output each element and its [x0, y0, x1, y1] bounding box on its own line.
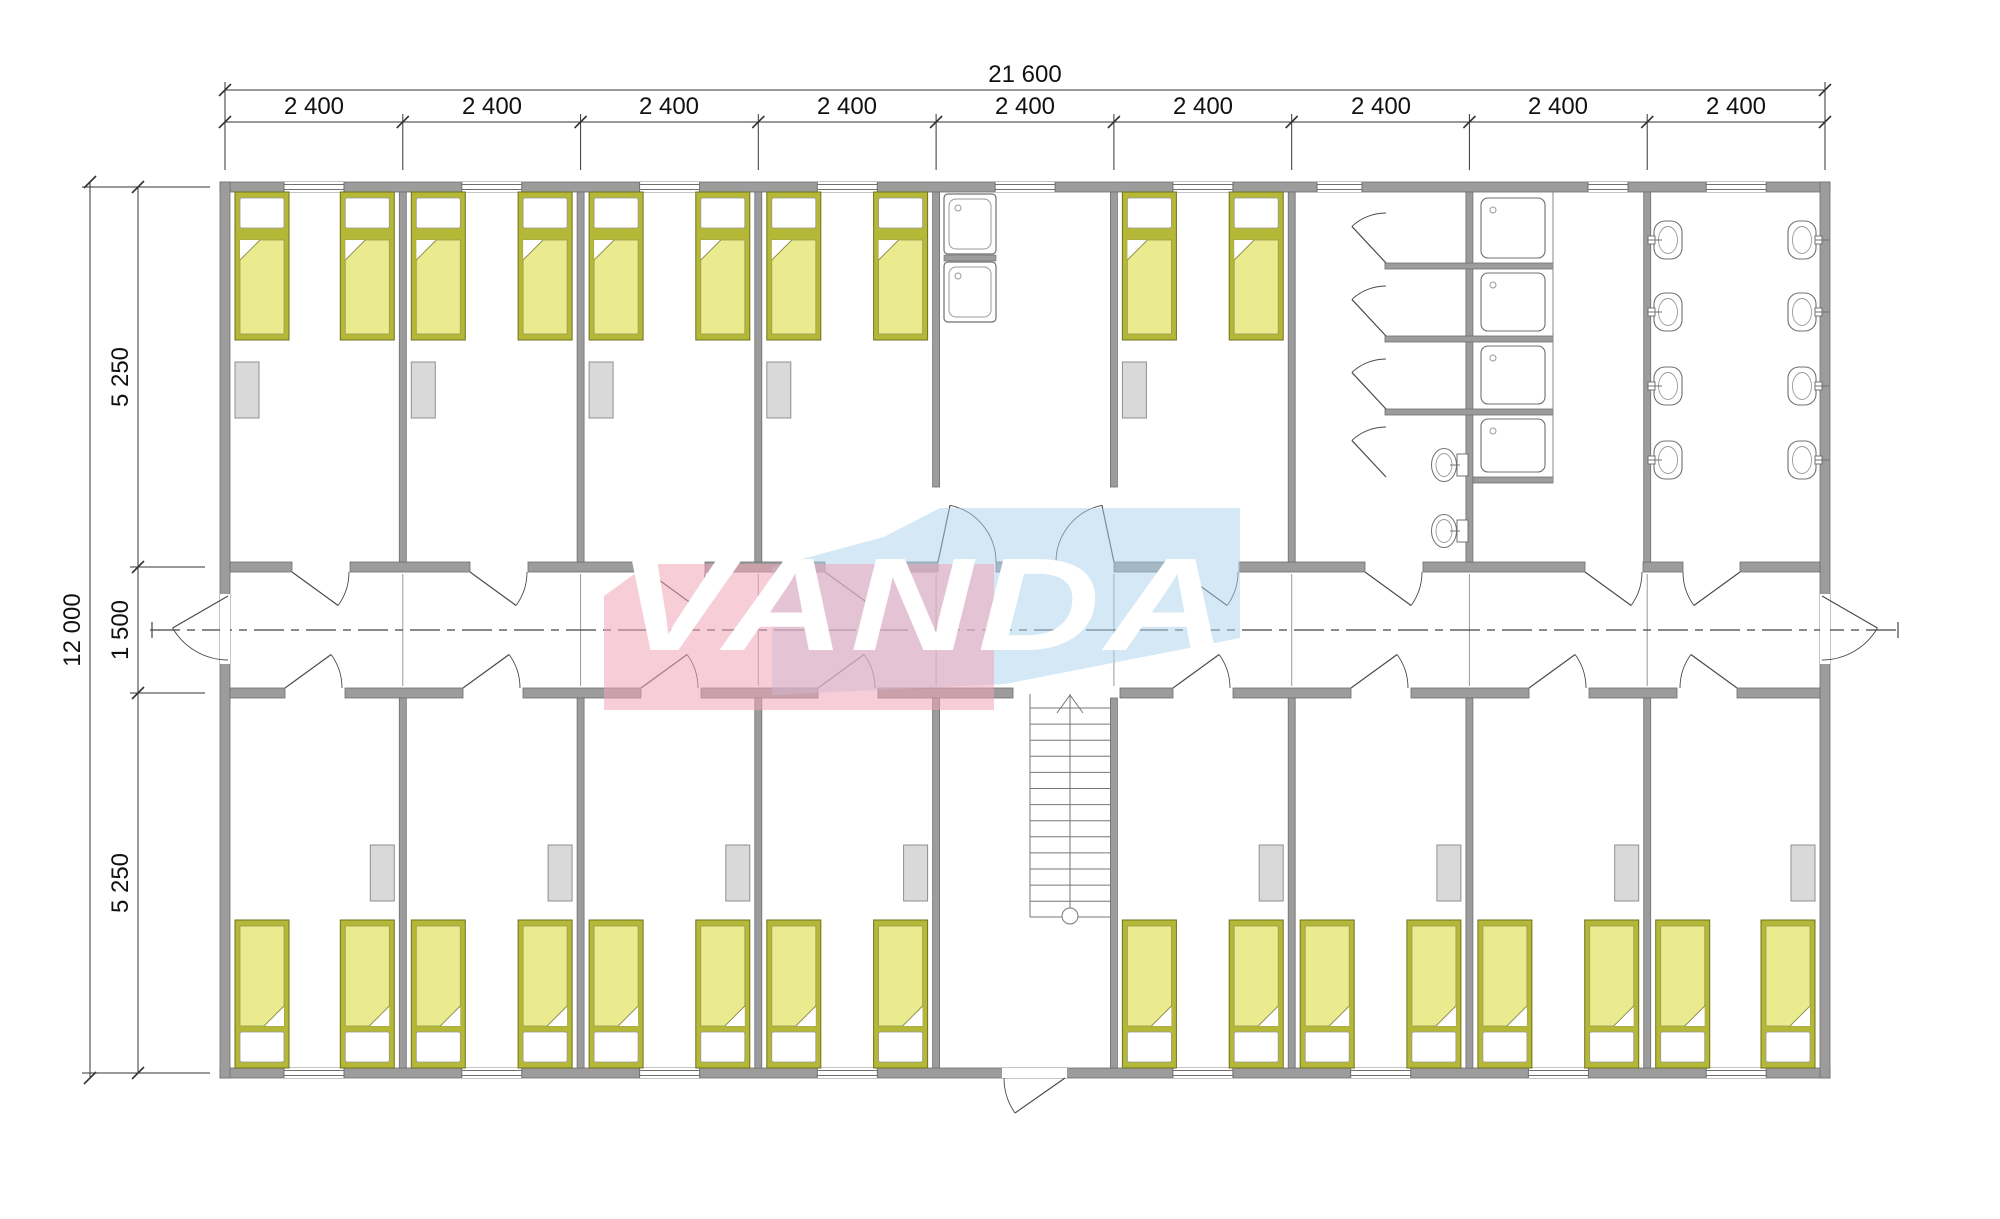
- watermark-text-layer: VANDA: [618, 531, 1233, 678]
- toilet: [1432, 515, 1469, 548]
- bed-pillow: [345, 1032, 389, 1062]
- shower-stall-door: [1352, 213, 1386, 263]
- dim-module-label: 2 400: [1528, 93, 1588, 120]
- bed-pillow: [1127, 1032, 1171, 1062]
- window-top: [817, 182, 877, 192]
- washbasin: [1648, 441, 1682, 479]
- wardrobe: [548, 845, 572, 901]
- bed: [1300, 920, 1354, 1068]
- room-door-top: [1365, 572, 1422, 606]
- bed: [1478, 920, 1532, 1068]
- bed: [1407, 920, 1461, 1068]
- bed-blanket: [1234, 240, 1278, 334]
- door-swing-arc: [1352, 286, 1386, 299]
- corridor-wall-top: [1643, 562, 1683, 572]
- door-leaf: [463, 654, 509, 688]
- door-leaf: [470, 572, 516, 606]
- window-top: [1588, 182, 1628, 192]
- stall-partition: [1385, 336, 1553, 342]
- bed-blanket: [240, 926, 284, 1026]
- door-swing-arc: [1575, 655, 1586, 689]
- bed-pillow: [240, 1032, 284, 1062]
- tray-outer: [1481, 346, 1545, 404]
- door-swing-arc: [1004, 1078, 1015, 1113]
- bed: [696, 192, 750, 340]
- bed-pillow: [772, 1032, 816, 1062]
- window-bottom: [1173, 1068, 1233, 1078]
- washbasin: [1648, 221, 1682, 259]
- stall-partition: [1385, 409, 1553, 415]
- bed: [235, 920, 289, 1068]
- bed-pillow: [240, 198, 284, 228]
- exit-opening-left: [220, 594, 230, 664]
- wardrobe: [1615, 845, 1639, 901]
- door-swing-arc: [1683, 572, 1694, 606]
- bed-pillow: [1412, 1032, 1456, 1062]
- partition-wall-top: [1644, 192, 1651, 562]
- room-door-top: [292, 572, 349, 606]
- door-leaf: [285, 654, 331, 688]
- door-swing-arc: [1680, 655, 1691, 689]
- washbasin: [1648, 293, 1682, 331]
- door-swing-arc: [1397, 655, 1408, 689]
- bed: [411, 920, 465, 1068]
- window-top: [1706, 182, 1766, 192]
- dim-module-label: 2 400: [639, 93, 699, 120]
- dim-module-label: 2 400: [995, 93, 1055, 120]
- staircase: [1030, 694, 1110, 924]
- dim-module-label: 2 400: [817, 93, 877, 120]
- bed-blanket: [701, 240, 745, 334]
- bed-pillow: [1127, 198, 1171, 228]
- room-door-bottom: [463, 654, 520, 688]
- shower-tray: [1481, 419, 1545, 472]
- bed: [1761, 920, 1815, 1068]
- door-swing-arc: [1352, 427, 1386, 440]
- partition-wall-top: [399, 192, 406, 562]
- partition-wall-bottom: [1644, 698, 1651, 1068]
- partition-wall-top: [577, 192, 584, 562]
- shower-stall-door: [1352, 427, 1386, 477]
- partition-wall-top: [1110, 192, 1117, 487]
- partition-wall-bottom: [933, 698, 940, 1068]
- dim-module-label: 2 400: [1351, 93, 1411, 120]
- corridor-wall-bottom: [1233, 688, 1351, 698]
- bed-pillow: [1661, 1032, 1705, 1062]
- window-bottom: [1351, 1068, 1411, 1078]
- partition-wall-bottom: [755, 698, 762, 1068]
- dim-module-label: 2 400: [1173, 93, 1233, 120]
- bed: [340, 192, 394, 340]
- entrance-door: [1004, 1078, 1065, 1113]
- room-door-bottom: [1529, 654, 1586, 688]
- bed: [874, 192, 928, 340]
- door-swing-arc: [516, 572, 527, 606]
- door-leaf: [1352, 372, 1386, 409]
- wardrobe: [370, 845, 394, 901]
- partition-wall-top: [1288, 192, 1295, 562]
- wardrobe: [1791, 845, 1815, 901]
- door-swing-arc: [1631, 572, 1642, 606]
- bed: [589, 192, 643, 340]
- partition-wall-top: [1466, 192, 1473, 562]
- bed-pillow: [1590, 1032, 1634, 1062]
- bed-pillow: [1483, 1032, 1527, 1062]
- bed: [518, 920, 572, 1068]
- bed: [1229, 192, 1283, 340]
- corridor-wall-bottom: [1120, 688, 1173, 698]
- exit-opening-right: [1820, 594, 1830, 664]
- bed-blanket: [594, 926, 638, 1026]
- door-leaf: [1352, 226, 1386, 263]
- partition-wall-top: [933, 192, 940, 487]
- bed-pillow: [594, 1032, 638, 1062]
- bed-blanket: [416, 240, 460, 334]
- window-bottom: [1528, 1068, 1588, 1078]
- bed: [696, 920, 750, 1068]
- shower-tray: [1481, 346, 1545, 404]
- room-door-bottom: [285, 654, 342, 688]
- bed-blanket: [1127, 240, 1171, 334]
- wardrobe: [904, 845, 928, 901]
- corridor-wall-bottom: [1411, 688, 1529, 698]
- shower-stall-door: [1352, 359, 1386, 409]
- sink-outer: [944, 262, 996, 322]
- bed: [767, 920, 821, 1068]
- shower-stall-door: [1352, 286, 1386, 336]
- corridor-wall-top: [1423, 562, 1585, 572]
- partition-wall-bottom: [1288, 698, 1295, 1068]
- corridor-wall-bottom: [1737, 688, 1820, 698]
- dim-module-label: 2 400: [1706, 93, 1766, 120]
- bed-pillow: [879, 198, 923, 228]
- kitchen-sink: [944, 262, 996, 322]
- door-swing-arc: [338, 572, 349, 606]
- corridor-wall-bottom: [230, 688, 285, 698]
- partition-wall-top: [755, 192, 762, 562]
- bed: [340, 920, 394, 1068]
- door-leaf: [1694, 572, 1740, 606]
- window-top: [462, 182, 522, 192]
- bed-pillow: [1766, 1032, 1810, 1062]
- window-bottom: [817, 1068, 877, 1078]
- bed-blanket: [523, 926, 567, 1026]
- bed-blanket: [1305, 926, 1349, 1026]
- bed-blanket: [1483, 926, 1527, 1026]
- shower-tray-end-wall: [1473, 477, 1553, 483]
- bed-pillow: [701, 198, 745, 228]
- corridor-wall-top: [350, 562, 470, 572]
- bed: [1122, 192, 1176, 340]
- bed: [1229, 920, 1283, 1068]
- door-swing-arc: [509, 655, 520, 689]
- corridor-wall-top: [230, 562, 292, 572]
- door-leaf: [1529, 654, 1575, 688]
- bed-blanket: [345, 240, 389, 334]
- watermark-logo-text: VANDA: [618, 531, 1233, 678]
- partition-wall-bottom: [1110, 698, 1117, 1068]
- bed: [235, 192, 289, 340]
- sink-divider: [944, 255, 996, 261]
- bed-pillow: [1234, 1032, 1278, 1062]
- dim-total-width-label: 21 600: [988, 61, 1061, 88]
- corridor-wall-top: [1740, 562, 1820, 572]
- bed-pillow: [523, 1032, 567, 1062]
- floor-plan-page: 21 600 2 400 2 400 2 400 2 400 2 400 2 4…: [0, 0, 2000, 1219]
- bed: [411, 192, 465, 340]
- bed-pillow: [1234, 198, 1278, 228]
- room-door-top: [1585, 572, 1642, 606]
- bed-blanket: [1127, 926, 1171, 1026]
- washbasin: [1648, 367, 1682, 405]
- bed-pillow: [523, 198, 567, 228]
- bed-blanket: [240, 240, 284, 334]
- toilet: [1432, 449, 1469, 482]
- wardrobe: [411, 362, 435, 418]
- window-top: [1317, 182, 1362, 192]
- door-swing-arc: [1352, 359, 1386, 372]
- wardrobe: [1437, 845, 1461, 901]
- dim-total-height-label: 12 000: [59, 593, 86, 666]
- door-leaf: [1352, 440, 1386, 477]
- window-bottom: [462, 1068, 522, 1078]
- bed: [767, 192, 821, 340]
- door-swing-arc: [1411, 572, 1422, 606]
- bed-pillow: [879, 1032, 923, 1062]
- door-leaf: [292, 572, 338, 606]
- bed-blanket: [1766, 926, 1810, 1026]
- window-top: [995, 182, 1055, 192]
- door-leaf: [1585, 572, 1631, 606]
- bed-pillow: [772, 198, 816, 228]
- kitchen-sink: [944, 194, 996, 254]
- door-leaf: [1352, 299, 1386, 336]
- bed: [1585, 920, 1639, 1068]
- bed: [874, 920, 928, 1068]
- bed-blanket: [879, 240, 923, 334]
- bed-pillow: [1305, 1032, 1349, 1062]
- dim-seg-bottom-label: 5 250: [107, 853, 134, 913]
- dim-module-label: 2 400: [284, 93, 344, 120]
- wardrobe: [726, 845, 750, 901]
- bed-blanket: [772, 926, 816, 1026]
- door-swing-arc: [331, 655, 342, 689]
- window-top: [1173, 182, 1233, 192]
- door-leaf: [1351, 654, 1397, 688]
- corridor-wall-top: [1239, 562, 1365, 572]
- bed-blanket: [1412, 926, 1456, 1026]
- window-top: [284, 182, 344, 192]
- dim-seg-corridor-label: 1 500: [107, 600, 134, 660]
- partition-wall-bottom: [577, 698, 584, 1068]
- floor-plan-canvas: 21 600 2 400 2 400 2 400 2 400 2 400 2 4…: [0, 0, 2000, 1219]
- window-bottom: [640, 1068, 700, 1078]
- room-door-bottom: [1351, 654, 1408, 688]
- partition-wall-bottom: [1466, 698, 1473, 1068]
- tray-outer: [1481, 419, 1545, 472]
- room-door-top: [1683, 572, 1740, 606]
- bed-blanket: [772, 240, 816, 334]
- shower-tray: [1481, 198, 1545, 258]
- wardrobe: [1122, 362, 1146, 418]
- wardrobe: [1259, 845, 1283, 901]
- window-bottom: [284, 1068, 344, 1078]
- dim-module-label: 2 400: [462, 93, 522, 120]
- bed-blanket: [1590, 926, 1634, 1026]
- bed-blanket: [1234, 926, 1278, 1026]
- wardrobe: [235, 362, 259, 418]
- bed-pillow: [416, 1032, 460, 1062]
- bed: [518, 192, 572, 340]
- bed-blanket: [416, 926, 460, 1026]
- bed-pillow: [416, 198, 460, 228]
- door-leaf: [1015, 1078, 1065, 1113]
- tray-outer: [1481, 273, 1545, 331]
- corridor-wall-bottom: [345, 688, 463, 698]
- stair-newel: [1062, 908, 1078, 924]
- corridor-wall-bottom: [1589, 688, 1677, 698]
- stall-partition: [1385, 263, 1553, 269]
- wardrobe: [589, 362, 613, 418]
- window-top: [640, 182, 700, 192]
- shower-tray: [1481, 273, 1545, 331]
- bed-pillow: [701, 1032, 745, 1062]
- room-door-bottom: [1680, 654, 1737, 688]
- entrance-opening: [1002, 1068, 1067, 1078]
- tray-outer: [1481, 198, 1545, 258]
- window-bottom: [1706, 1068, 1766, 1078]
- room-door-top: [470, 572, 527, 606]
- bed: [589, 920, 643, 1068]
- door-swing-arc: [1352, 213, 1386, 226]
- bed-blanket: [701, 926, 745, 1026]
- bed: [1122, 920, 1176, 1068]
- door-leaf: [1691, 654, 1737, 688]
- bed-blanket: [1661, 926, 1705, 1026]
- sink-outer: [944, 194, 996, 254]
- bed-blanket: [879, 926, 923, 1026]
- bed-blanket: [523, 240, 567, 334]
- partition-wall-bottom: [399, 698, 406, 1068]
- dim-seg-top-label: 5 250: [107, 347, 134, 407]
- wardrobe: [767, 362, 791, 418]
- bed-pillow: [594, 198, 638, 228]
- bed: [1656, 920, 1710, 1068]
- door-leaf: [1365, 572, 1411, 606]
- bed-blanket: [594, 240, 638, 334]
- bed-pillow: [345, 198, 389, 228]
- bed-blanket: [345, 926, 389, 1026]
